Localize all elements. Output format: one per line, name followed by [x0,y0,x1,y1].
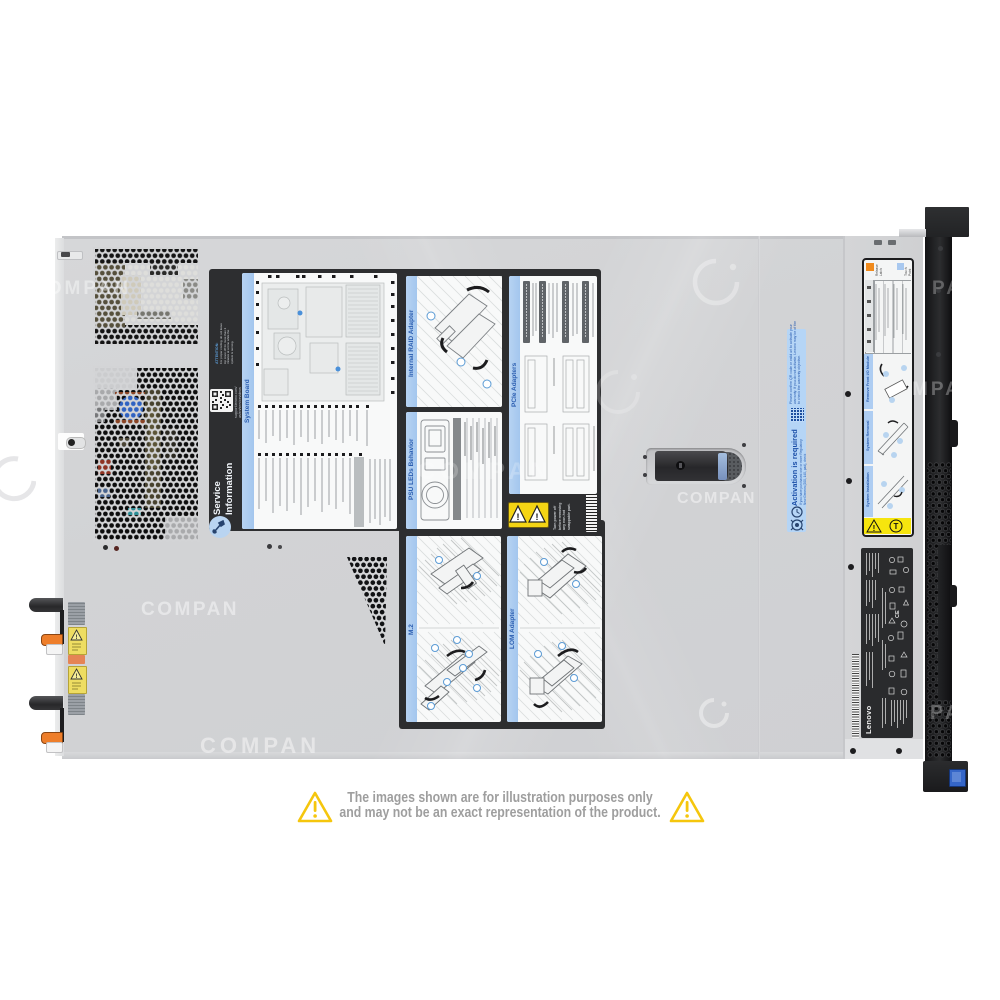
svg-text:T: T [894,522,899,531]
svg-text:!: ! [76,635,78,641]
svg-text:CE: CE [895,610,901,618]
svg-text:!: ! [873,524,876,533]
svg-text:!: ! [76,674,78,680]
svg-text:!: ! [536,512,539,522]
svg-text:!: ! [517,512,520,522]
